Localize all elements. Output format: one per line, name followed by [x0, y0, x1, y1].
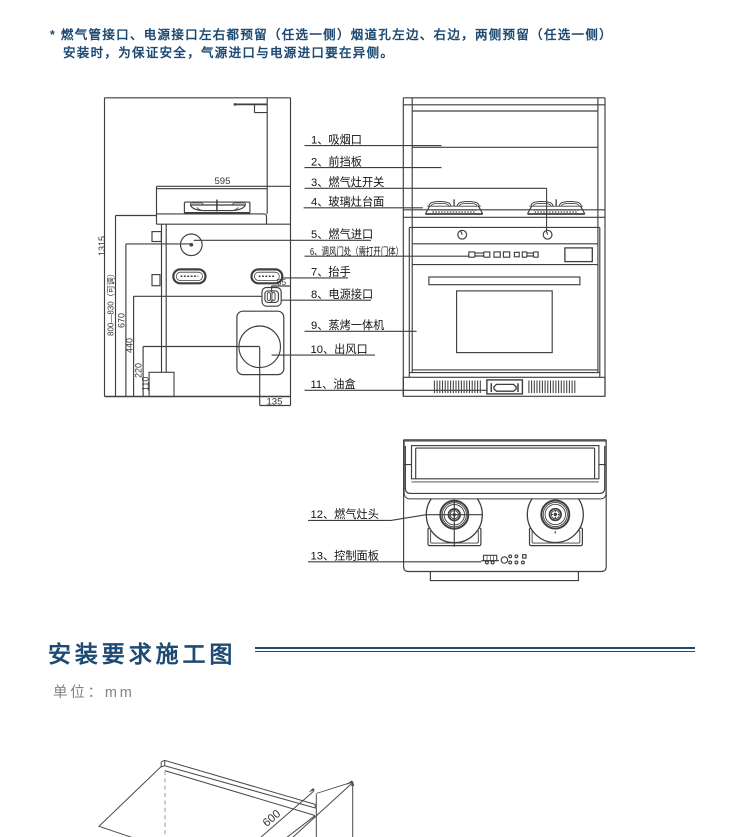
svg-text:8、电源接口: 8、电源接口: [311, 287, 373, 301]
svg-text:5、燃气进口: 5、燃气进口: [311, 227, 373, 241]
svg-text:135: 135: [267, 397, 283, 408]
svg-text:13、控制面板: 13、控制面板: [311, 549, 379, 563]
svg-text:220: 220: [134, 363, 144, 378]
svg-text:11、油盒: 11、油盒: [311, 377, 356, 391]
svg-text:7、抬手: 7、抬手: [311, 265, 351, 279]
svg-text:3、燃气灶开关: 3、燃气灶开关: [311, 175, 384, 189]
svg-text:670: 670: [117, 313, 127, 328]
svg-text:6、调风门处（需打开门体）: 6、调风门处（需打开门体）: [310, 244, 403, 257]
svg-text:12、燃气灶头: 12、燃气灶头: [311, 507, 379, 521]
svg-text:440: 440: [125, 338, 135, 353]
svg-text:2、前挡板: 2、前挡板: [311, 154, 362, 168]
svg-text:595: 595: [215, 176, 231, 187]
svg-text:1、吸烟口: 1、吸烟口: [311, 132, 362, 146]
svg-text:10、出风口: 10、出风口: [311, 342, 368, 356]
svg-text:4、玻璃灶台面: 4、玻璃灶台面: [311, 195, 384, 209]
svg-text:800—830（可调）: 800—830（可调）: [107, 269, 116, 336]
svg-text:9、蒸烤一体机: 9、蒸烤一体机: [311, 318, 384, 332]
svg-text:600: 600: [261, 808, 283, 830]
svg-text:1315: 1315: [97, 236, 107, 256]
